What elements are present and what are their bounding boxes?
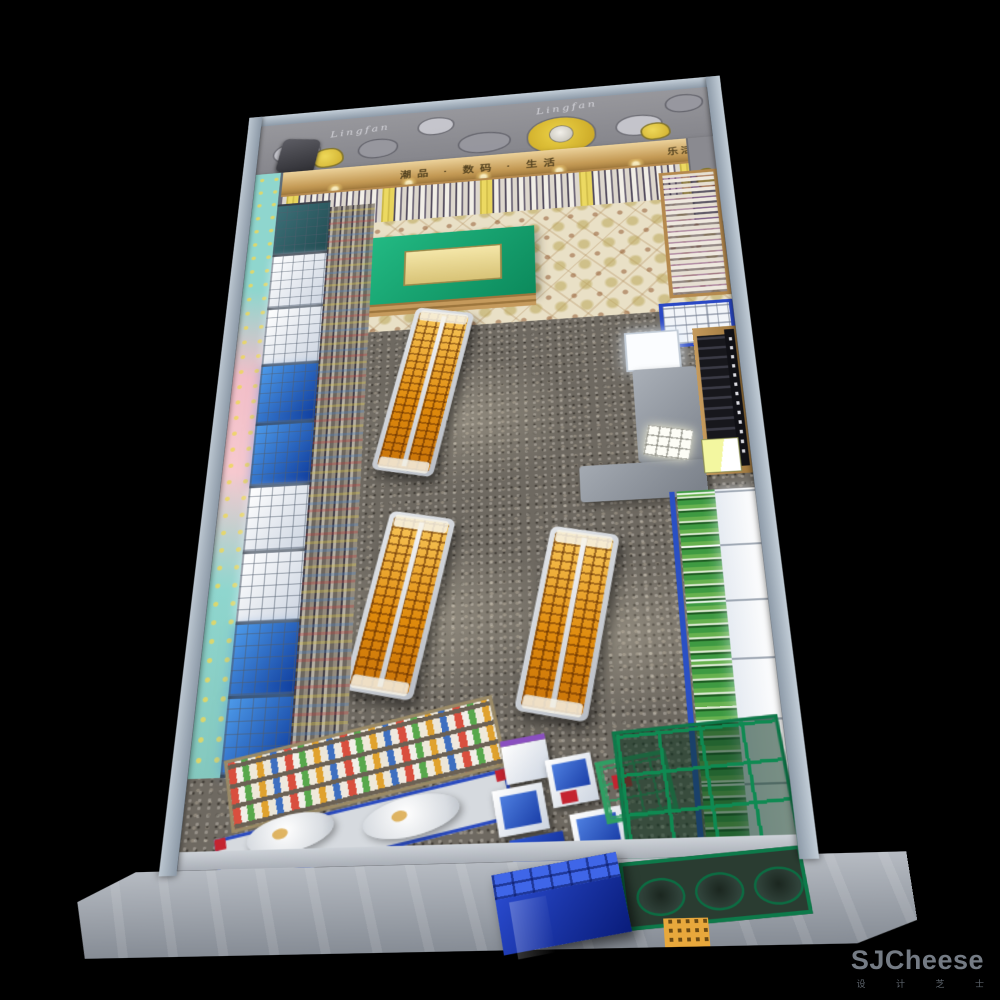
kiosk-red-panel (560, 790, 578, 805)
yellow-sign-panel (701, 437, 742, 473)
wall-bay-blue (249, 422, 314, 486)
cloud-doodle (417, 116, 455, 137)
cloud-doodle (458, 130, 512, 155)
round-cutout (634, 876, 688, 919)
food-item (272, 826, 289, 840)
watermark-subtitle: 设 计 芝 士 (851, 977, 998, 990)
watermark: SJCheese 设 计 芝 士 (851, 947, 984, 990)
wall-bay-white (243, 485, 310, 552)
wall-bay-teal (273, 202, 331, 255)
counter-light-panel (643, 425, 693, 460)
store-scene: Lingfan Lingfan 潮品 · 数码 · 生活 乐活 (149, 76, 830, 955)
store-plan: Lingfan Lingfan 潮品 · 数码 · 生活 乐活 (149, 76, 830, 955)
lit-display-case (624, 329, 682, 372)
wall-bay-white (267, 253, 326, 308)
mural-script-text: Lingfan (536, 99, 598, 117)
cloud-doodle (664, 92, 705, 113)
watermark-title: SJCheese (851, 947, 984, 974)
table-gold-tray (403, 244, 502, 287)
wall-bay-white (236, 551, 305, 621)
mural-script-text: Lingfan (331, 122, 391, 140)
cloud-doodle (357, 137, 399, 160)
kiosk-white-purple (500, 733, 553, 785)
kiosk-blue-panel (500, 790, 542, 829)
kiosk-white-blue-red (545, 752, 600, 808)
food-item (390, 809, 408, 823)
green-display-table (361, 225, 536, 305)
wall-bay-blue (256, 363, 319, 424)
round-cutout (751, 864, 807, 907)
kiosk-blue-panel (551, 759, 590, 791)
kiosk-white-blue (492, 782, 550, 838)
round-cutout (692, 870, 747, 913)
corner-fixture (275, 139, 322, 173)
wall-bay-blue (228, 622, 299, 696)
render-canvas: Lingfan Lingfan 潮品 · 数码 · 生活 乐活 (0, 0, 1000, 1000)
wall-bay-white (262, 307, 323, 365)
gold-grate (663, 918, 710, 948)
